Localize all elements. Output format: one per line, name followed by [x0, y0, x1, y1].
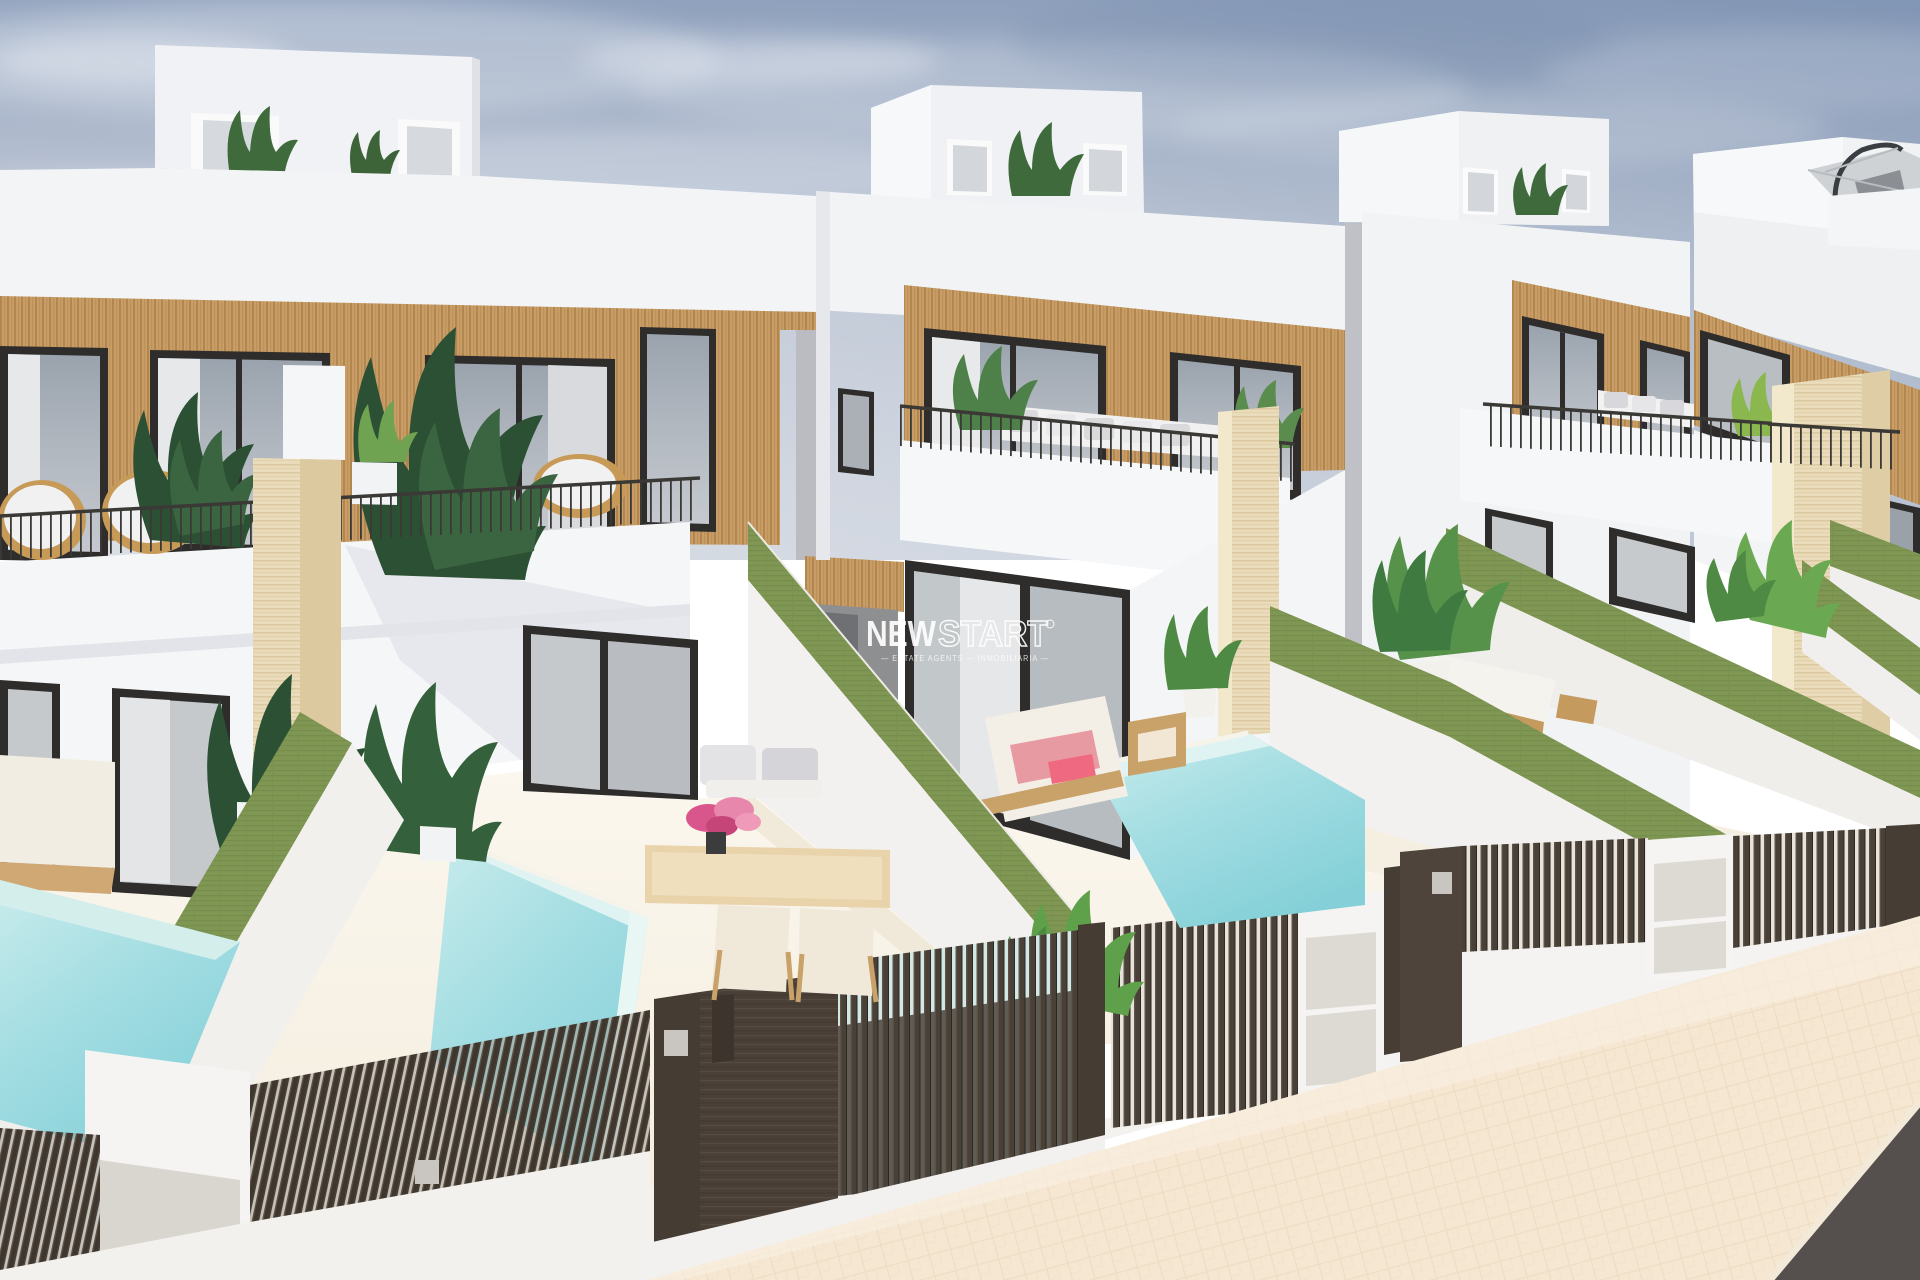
svg-text:NEW: NEW: [866, 613, 936, 654]
svg-text:— ESTATE AGENTS — INMOBILIARIA: — ESTATE AGENTS — INMOBILIARIA —: [881, 654, 1049, 663]
svg-text:START: START: [938, 613, 1048, 654]
